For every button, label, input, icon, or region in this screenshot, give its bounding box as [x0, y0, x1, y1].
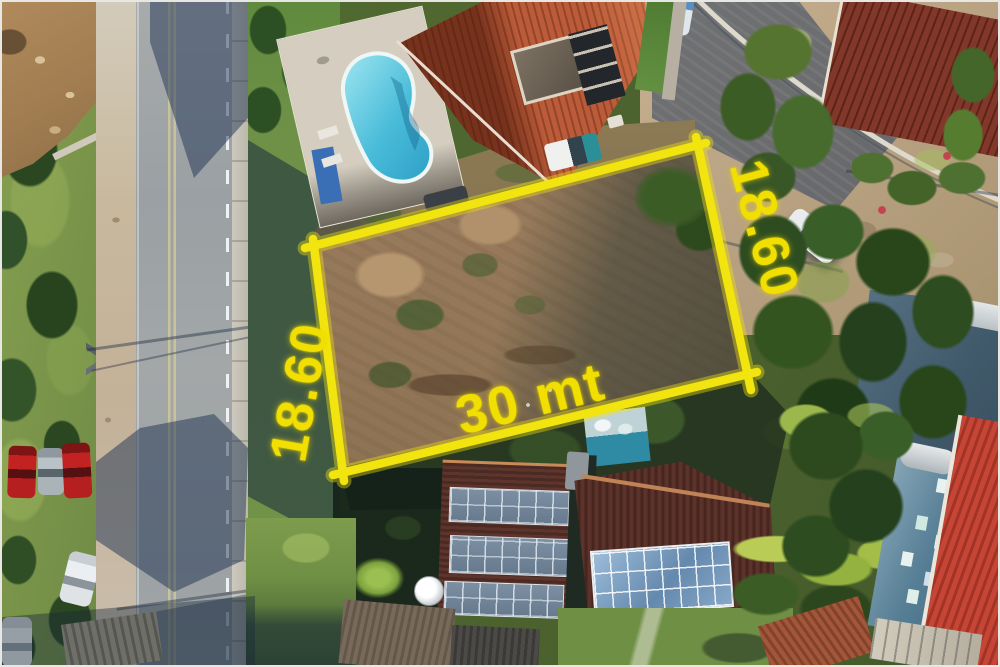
plot-boundary-top [305, 143, 706, 248]
plot-boundary-outline [0, 0, 1000, 667]
aerial-photo-land-plot: 18.60 18.60 30 mt [0, 0, 1000, 667]
